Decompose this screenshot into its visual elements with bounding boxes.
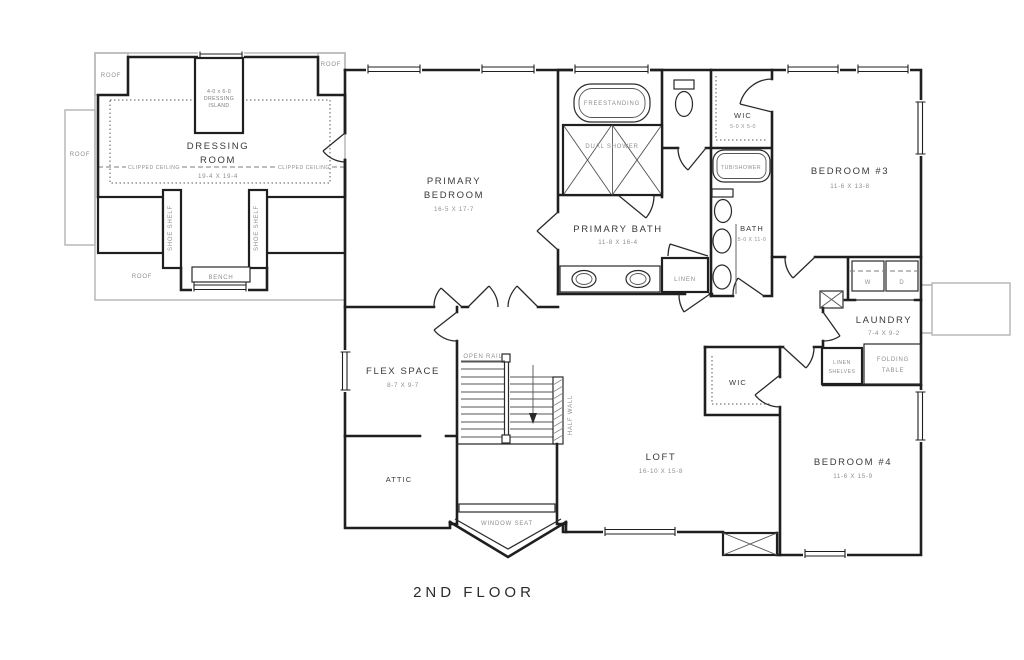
wic-label: WIC: [734, 111, 752, 120]
freestanding-label: FREESTANDING: [584, 101, 640, 107]
dryer-label: D: [899, 280, 904, 286]
bath-double-door: [537, 212, 558, 250]
wic4-label: WIC: [729, 378, 747, 387]
folding-table: [864, 344, 921, 384]
bath-dims: 5-0 X 11-0: [738, 237, 767, 243]
dressing-room-dims: 19-4 X 19-4: [198, 173, 238, 180]
primary-double-doors: [468, 286, 538, 307]
primary-bath-dims: 11-8 X 16-4: [598, 239, 638, 246]
dressing-closet-right: [267, 197, 345, 253]
page-title: 2ND FLOOR: [413, 584, 535, 601]
svg-text:ISLAND: ISLAND: [208, 103, 229, 109]
clipped-ceiling-left-label: CLIPPED CEILING: [128, 165, 180, 171]
attic-label: ATTIC: [386, 475, 413, 484]
half-wall: [553, 377, 563, 444]
shower-area-door: [618, 195, 654, 218]
floor-plan-drawing: DRESSING ROOM 19-4 X 19-4 4-0 x 6-0 DRES…: [0, 0, 1024, 660]
primary-bedroom-label: PRIMARY: [427, 176, 481, 187]
washer-dryer: [850, 261, 919, 291]
svg-text:DRESSING: DRESSING: [204, 96, 234, 102]
laundry-door: [823, 312, 840, 341]
clipped-ceiling-right-label: CLIPPED CEILING: [278, 165, 330, 171]
chase-laundry: [820, 291, 843, 308]
svg-text:BEDROOM: BEDROOM: [424, 190, 484, 201]
open-rail-label: OPEN RAIL: [463, 354, 502, 360]
wic3-shelves: [716, 76, 768, 140]
laundry-label: LAUNDRY: [856, 315, 912, 326]
primary-vanity: [560, 266, 660, 292]
primary-bedroom-dims: 16-5 X 17-7: [434, 206, 474, 213]
loft-hall-door: [679, 294, 710, 312]
washer-label: W: [865, 280, 871, 286]
dual-shower-label: DUAL SHOWER: [585, 144, 638, 150]
dressing-closet-left: [98, 197, 163, 253]
linen-shelves-label: LINEN: [833, 360, 851, 366]
flex-door: [434, 312, 457, 341]
svg-text:ROOM: ROOM: [200, 155, 236, 166]
primary-bath-label: PRIMARY BATH: [573, 224, 662, 235]
primary-bedroom-door: [434, 288, 462, 307]
stair-rail: [505, 362, 509, 435]
bedroom3-door: [785, 257, 815, 278]
bedroom3-label: BEDROOM #3: [811, 166, 889, 177]
flex-space-dims: 8-7 X 9-7: [387, 382, 419, 389]
dressing-island-label: 4-0 x 6-0: [207, 89, 231, 95]
bedroom3-dims: 11-6 X 13-8: [830, 183, 870, 190]
linen-label: LINEN: [674, 277, 696, 283]
toilet-bath: [712, 189, 733, 223]
water-closet-door: [678, 148, 706, 170]
shoe-shelf-right-label: SHOE SHELF: [254, 205, 260, 251]
bedroom4-label: BEDROOM #4: [814, 457, 892, 468]
roof-label-left: ROOF: [70, 152, 91, 158]
linen-closet: [662, 258, 708, 292]
half-wall-label: HALF WALL: [568, 395, 574, 435]
roof-label-bottom: ROOF: [132, 274, 153, 280]
window-seat-label: WINDOW SEAT: [481, 521, 533, 527]
floor-plan-canvas: DRESSING ROOM 19-4 X 19-4 4-0 x 6-0 DRES…: [0, 0, 1024, 660]
roof-label-topright: ROOF: [321, 62, 342, 68]
bedroom4-door: [783, 347, 814, 368]
loft-dims: 16-10 X 15-8: [639, 468, 683, 475]
window-seat-bench: [459, 504, 555, 512]
flex-space-label: FLEX SPACE: [366, 366, 440, 377]
wic-dims: 5-0 X 5-0: [730, 124, 756, 130]
linen-shelves: [822, 348, 862, 384]
wic4-door: [755, 375, 780, 407]
folding-table-label: FOLDING: [877, 357, 909, 363]
linen-door: [668, 244, 708, 256]
svg-text:SHELVES: SHELVES: [828, 369, 855, 375]
svg-text:TABLE: TABLE: [882, 368, 905, 374]
stairs: [461, 354, 563, 444]
dressing-room-label: DRESSING: [187, 141, 249, 152]
wic3-door: [740, 79, 772, 112]
loft-label: LOFT: [646, 452, 677, 463]
bath-vanity: [713, 224, 736, 294]
dressing-door: [323, 133, 345, 162]
tub-shower-label: TUB/SHOWER: [721, 165, 761, 171]
bath-label: BATH: [740, 224, 764, 233]
hall-bath-door: [733, 278, 764, 296]
chase-bottom: [723, 533, 777, 555]
stair-direction-arrow: [529, 365, 537, 424]
toilet-wc: [674, 80, 694, 117]
laundry-dims: 7-4 X 9-2: [868, 330, 900, 337]
labels: DRESSING ROOM 19-4 X 19-4 4-0 x 6-0 DRES…: [70, 62, 912, 601]
dual-shower: [563, 125, 662, 195]
bench-label: BENCH: [208, 275, 233, 281]
bedroom4-dims: 11-6 X 15-9: [833, 473, 873, 480]
roof-label-topleft: ROOF: [101, 73, 122, 79]
shoe-shelf-left-label: SHOE SHELF: [168, 205, 174, 251]
